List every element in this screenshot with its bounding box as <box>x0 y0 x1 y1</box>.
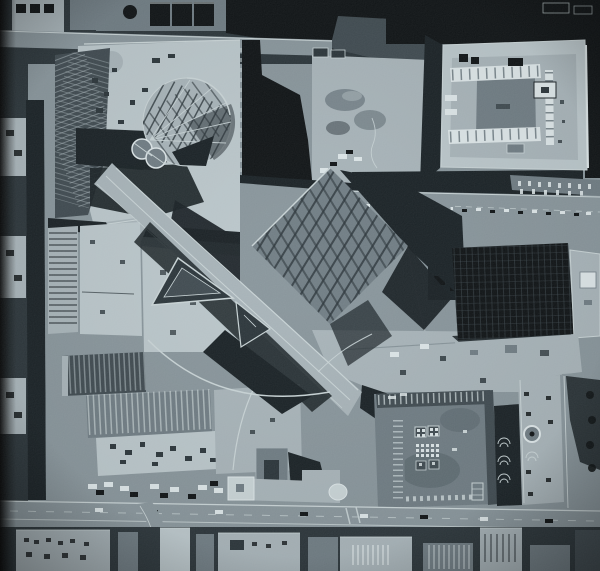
vignette <box>0 0 600 571</box>
aerial-photograph <box>0 0 600 571</box>
